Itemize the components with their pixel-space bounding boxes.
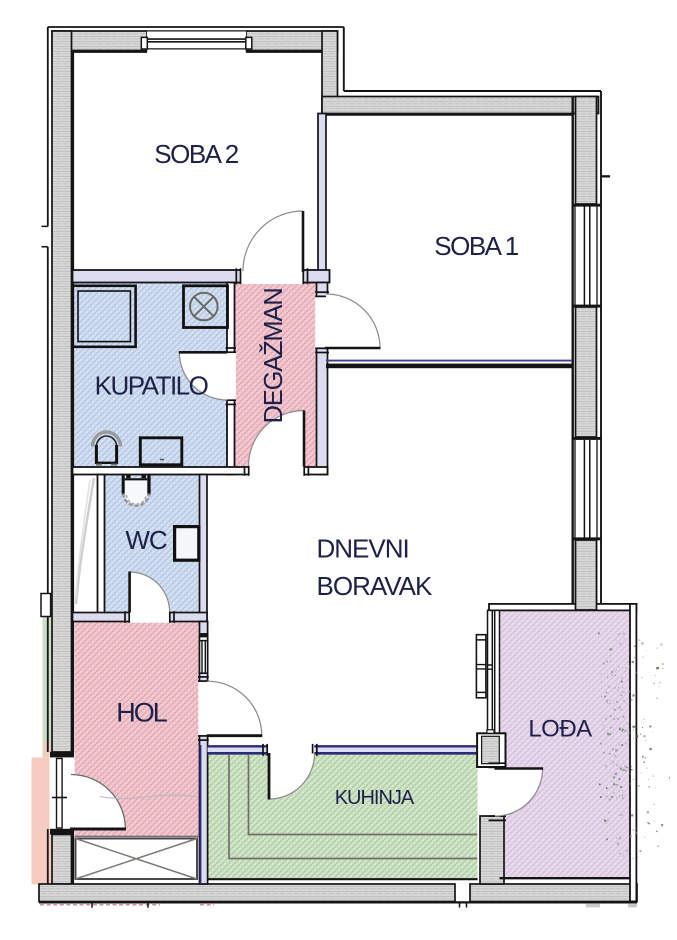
svg-text:WC: WC [125, 525, 167, 555]
svg-text:SOBA 1: SOBA 1 [434, 231, 519, 261]
svg-text:BORAVAK: BORAVAK [317, 571, 434, 601]
svg-text:SOBA 2: SOBA 2 [154, 139, 239, 169]
svg-text:KUPATILO: KUPATILO [95, 371, 208, 401]
svg-text:DEGAŽMAN: DEGAŽMAN [259, 289, 288, 424]
svg-text:DNEVNI: DNEVNI [317, 534, 409, 564]
svg-text:LOĐA: LOĐA [528, 716, 592, 743]
svg-text:KUHINJA: KUHINJA [335, 787, 415, 809]
svg-text:HOL: HOL [116, 698, 168, 728]
